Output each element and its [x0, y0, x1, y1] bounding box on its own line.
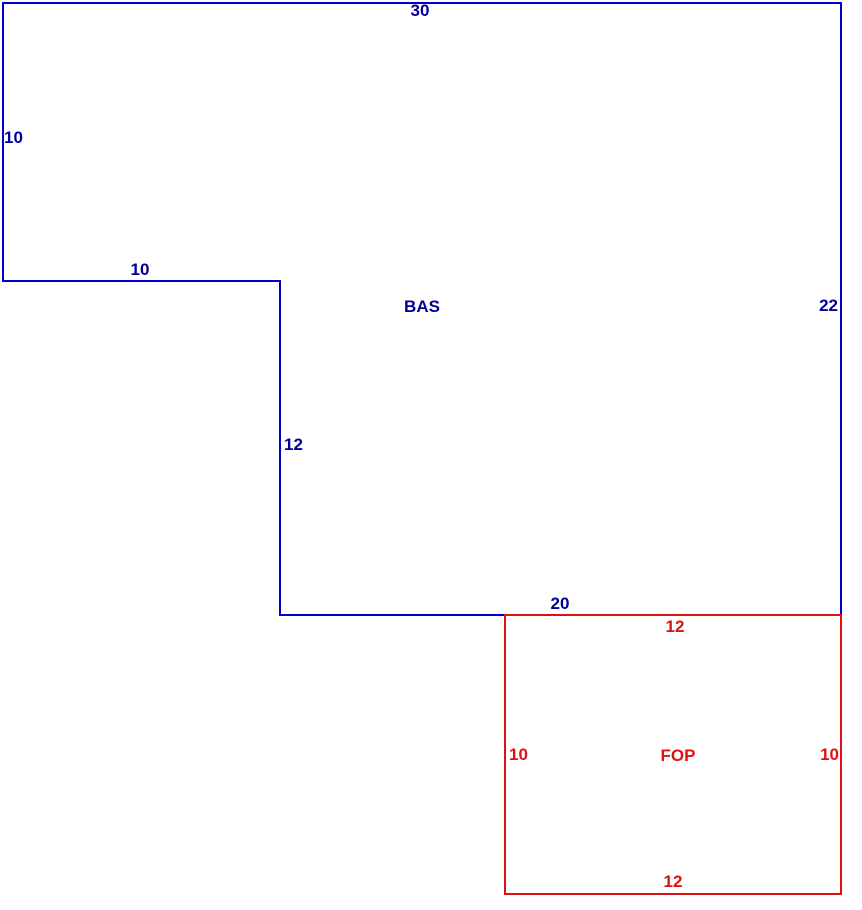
bas-edge-step-vertical [279, 280, 281, 616]
bas-edge-right [840, 2, 842, 616]
bas-area-label: BAS [404, 297, 440, 316]
fop-dim-left: 10 [509, 745, 528, 764]
bas-dim-step-horizontal: 10 [131, 260, 150, 279]
fop-dim-top: 12 [666, 617, 685, 636]
bas-edge-step-horizontal [2, 280, 281, 282]
bas-dim-right: 22 [819, 296, 838, 315]
fop-dim-bottom: 12 [664, 872, 683, 891]
bas-dim-bottom: 20 [551, 594, 570, 613]
bas-dim-top: 30 [411, 1, 430, 20]
fop-dim-right: 10 [820, 745, 839, 764]
sketch-canvas: 30 10 10 12 20 22 BAS 12 10 FOP 10 12 [0, 0, 862, 910]
bas-dim-left: 10 [4, 128, 23, 147]
bas-dim-step-vertical: 12 [284, 435, 303, 454]
fop-area-label: FOP [661, 746, 696, 765]
